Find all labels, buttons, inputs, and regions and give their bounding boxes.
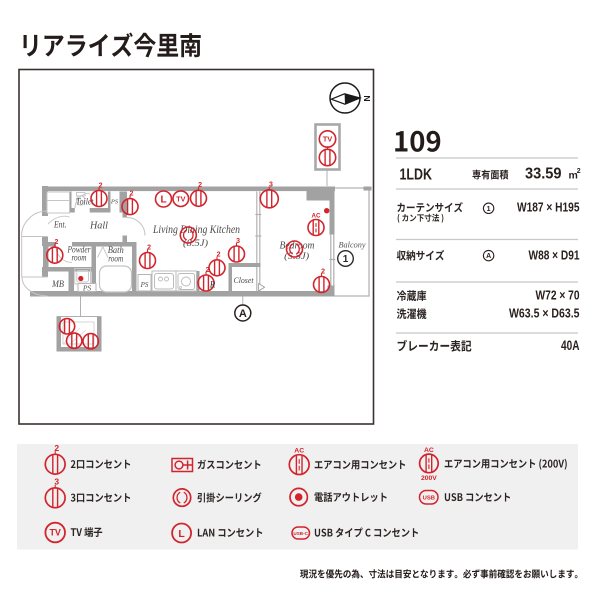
svg-text:L: L bbox=[160, 195, 166, 206]
svg-text:2: 2 bbox=[321, 268, 325, 275]
svg-text:USB: USB bbox=[423, 496, 435, 502]
svg-text:AC: AC bbox=[312, 212, 321, 219]
svg-text:1: 1 bbox=[343, 254, 349, 265]
svg-text:A: A bbox=[486, 253, 491, 260]
svg-text:AC: AC bbox=[424, 447, 434, 454]
svg-text:3: 3 bbox=[54, 477, 59, 487]
svg-text:L: L bbox=[178, 528, 185, 540]
svg-text:TV: TV bbox=[49, 528, 61, 538]
svg-text:40A: 40A bbox=[561, 338, 580, 353]
svg-text:room: room bbox=[108, 253, 123, 263]
svg-text:Closet: Closet bbox=[234, 275, 255, 285]
svg-text:2: 2 bbox=[198, 182, 202, 189]
svg-text:33.59: 33.59 bbox=[525, 166, 562, 183]
svg-text:Balcony: Balcony bbox=[339, 240, 366, 250]
svg-text:USB-C: USB-C bbox=[293, 531, 308, 536]
svg-text:2: 2 bbox=[130, 190, 134, 197]
svg-text:MB: MB bbox=[51, 279, 64, 289]
svg-text:TV: TV bbox=[323, 135, 333, 144]
svg-text:2: 2 bbox=[54, 443, 59, 453]
svg-text:1LDK: 1LDK bbox=[400, 167, 433, 184]
svg-text:200V: 200V bbox=[421, 475, 437, 482]
svg-text:W88 × D91: W88 × D91 bbox=[529, 248, 580, 263]
svg-text:R: R bbox=[209, 280, 216, 290]
svg-text:PS: PS bbox=[82, 283, 92, 292]
svg-text:A: A bbox=[239, 308, 247, 320]
svg-text:2: 2 bbox=[206, 267, 210, 274]
svg-text:2: 2 bbox=[99, 182, 103, 189]
svg-text:2: 2 bbox=[217, 252, 221, 259]
svg-text:N: N bbox=[362, 95, 372, 101]
svg-text:W187 × H195: W187 × H195 bbox=[517, 200, 580, 215]
svg-text:3: 3 bbox=[269, 182, 273, 189]
svg-text:2: 2 bbox=[147, 244, 151, 251]
svg-text:TV: TV bbox=[176, 194, 185, 203]
svg-text:Hall: Hall bbox=[89, 220, 108, 231]
svg-text:W72 × 70: W72 × 70 bbox=[536, 288, 580, 303]
svg-text:PS: PS bbox=[110, 199, 119, 206]
svg-text:2: 2 bbox=[54, 239, 58, 246]
svg-text:2: 2 bbox=[577, 168, 581, 175]
svg-text:Ent.: Ent. bbox=[53, 220, 66, 230]
svg-text:PS: PS bbox=[140, 281, 149, 289]
svg-text:AC: AC bbox=[294, 448, 304, 455]
svg-text:3: 3 bbox=[236, 238, 240, 245]
svg-text:W63.5 × D63.5: W63.5 × D63.5 bbox=[509, 306, 580, 321]
svg-text:room: room bbox=[72, 253, 87, 263]
svg-text:1: 1 bbox=[487, 206, 491, 213]
